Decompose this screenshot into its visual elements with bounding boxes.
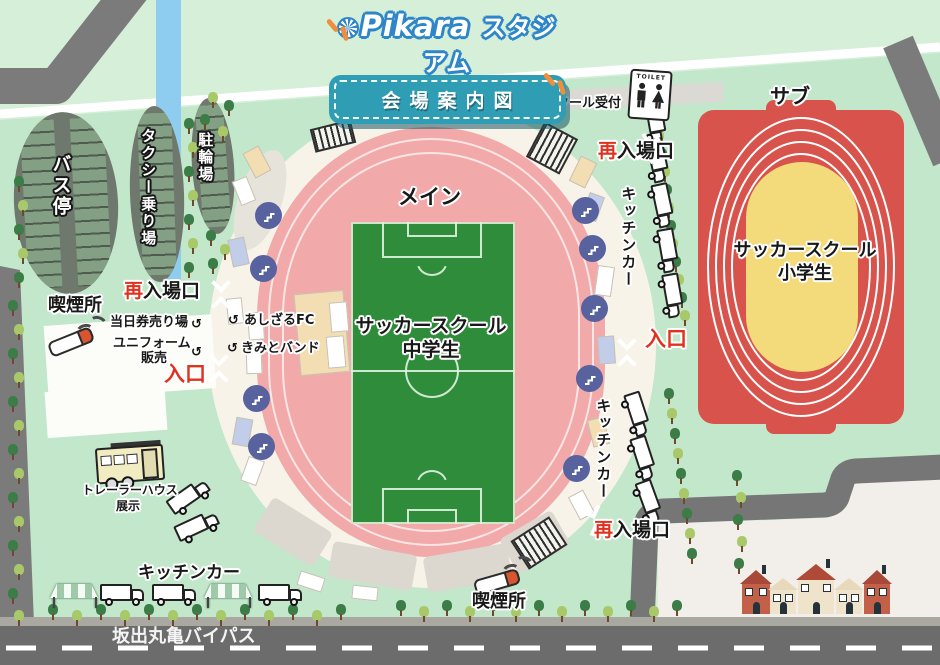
tree-icon [8, 492, 18, 508]
tree-icon [208, 92, 218, 108]
tree-icon [736, 492, 746, 508]
tree-icon [673, 448, 683, 464]
tree-icon [534, 600, 544, 616]
trailer-door [141, 448, 159, 479]
house-icon [796, 564, 836, 614]
venue-map: TOILET バス停 タクシー乗り場 駐輪場 喫煙所 喫煙所 再入場口 再入場口… [0, 0, 940, 665]
booth-ashizaru-label: あしざるFC [244, 314, 314, 328]
tree-icon [8, 300, 18, 316]
uniform-sales-label: ユニフォーム [113, 337, 191, 351]
tree-icon [188, 190, 198, 206]
stairs-badge-icon [572, 197, 599, 224]
male-icon [635, 82, 648, 109]
booth-kimito-label: きみとバンド [241, 342, 320, 356]
tree-icon [679, 488, 689, 504]
tree-icon [14, 564, 24, 580]
smoking-area-label: 喫煙所 [472, 592, 526, 611]
goal-box-bottom [407, 509, 457, 524]
female-icon [651, 83, 666, 110]
bus-stop-label: バス停 [50, 154, 71, 217]
tree-icon [14, 610, 24, 626]
tree-icon [206, 230, 216, 246]
reentry-gate-label: 再入場口 [594, 520, 670, 541]
main-field-label: サッカースクール [331, 316, 531, 337]
booth-arrow-icon: ↺ [227, 341, 238, 356]
tree-icon [732, 470, 742, 486]
tree-icon [224, 100, 234, 116]
tree-icon [14, 468, 24, 484]
tree-icon [18, 200, 28, 216]
tree-icon [580, 600, 590, 616]
map-title: Pikara スタジアム 会場案内図 [327, 8, 567, 119]
stairs-badge-icon [581, 295, 608, 322]
tree-icon [664, 388, 674, 404]
goal-box-top [407, 222, 457, 237]
tree-icon [216, 610, 226, 626]
bicycle-parking-label: 駐輪場 [197, 132, 213, 183]
booth-arrow-icon: ↺ [191, 317, 202, 332]
taxi-stand-label: タクシー乗り場 [140, 128, 156, 247]
tree-icon [396, 600, 406, 616]
tree-icon [14, 516, 24, 532]
tree-icon [72, 610, 82, 626]
food-truck-icon [152, 584, 198, 608]
trailer-house-label: トレーラーハウス [82, 484, 178, 497]
toilet-sign-text: TOILET [636, 73, 666, 82]
reentry-gate-label: 再入場口 [598, 141, 674, 162]
tree-icon [603, 606, 613, 622]
concourse-stall [351, 585, 378, 602]
tree-icon [672, 600, 682, 616]
booth-arrow-icon: ↺ [228, 313, 239, 328]
tree-icon [557, 606, 567, 622]
tree-icon [685, 528, 695, 544]
tree-icon [14, 176, 24, 192]
day-ticket-label: 当日券売り場 [110, 316, 188, 330]
main-field-label2: 中学生 [331, 340, 531, 361]
house-icon [768, 578, 798, 614]
sub-field-label: サッカースクール [705, 241, 905, 260]
stairs-badge-icon [579, 235, 606, 262]
tree-icon [188, 238, 198, 254]
tree-icon [312, 610, 322, 626]
gate-icon [214, 276, 228, 313]
tree-icon [200, 114, 210, 130]
tree-icon [18, 248, 28, 264]
tree-icon [649, 606, 659, 622]
food-truck-icon [258, 584, 304, 608]
entrance-label: 入口 [645, 328, 687, 351]
tree-icon [184, 118, 194, 134]
house-icon [862, 570, 892, 614]
tree-icon [14, 420, 24, 436]
tree-icon [120, 610, 130, 626]
food-truck-icon [100, 584, 146, 608]
tent-icon [50, 584, 98, 610]
stairs-badge-icon [250, 255, 277, 282]
houses-illustration [738, 550, 894, 614]
bypass-road-label: 坂出丸亀バイパス [112, 627, 256, 646]
tree-icon [676, 468, 686, 484]
west-building-annex [45, 384, 168, 438]
stairs-badge-icon [255, 202, 282, 229]
title-banner: 会場案内図 [334, 80, 561, 119]
tree-icon [667, 408, 677, 424]
tree-icon [14, 372, 24, 388]
entrance-label: 入口 [164, 363, 206, 386]
tree-icon [626, 600, 636, 616]
tree-icon [208, 258, 218, 274]
tree-icon [8, 396, 18, 412]
reentry-gate-label: 再入場口 [124, 281, 200, 302]
smoking-area-label: 喫煙所 [48, 296, 102, 315]
booth-arrow-icon: ↺ [191, 345, 202, 360]
stairs-badge-icon [248, 433, 275, 460]
stairs-badge-icon [576, 365, 603, 392]
tree-icon [184, 166, 194, 182]
stairs-badge-icon [563, 455, 590, 482]
tree-icon [218, 126, 228, 142]
sub-track-label: サブ [770, 86, 810, 108]
pikara-logo: Pikara スタジアム [327, 8, 567, 78]
tree-icon [682, 508, 692, 524]
main-track-label: メイン [398, 186, 461, 209]
tree-icon [442, 600, 452, 616]
tree-icon [687, 548, 697, 564]
stairs-badge-icon [243, 385, 270, 412]
tree-icon [8, 540, 18, 556]
tree-icon [336, 604, 346, 620]
tree-icon [14, 224, 24, 240]
kitchen-car-label: キッチンカー [595, 398, 611, 500]
tent-icon [204, 584, 252, 610]
tree-icon [220, 244, 230, 260]
uniform-sales-label2: 販売 [141, 352, 167, 366]
tree-icon [419, 606, 429, 622]
tree-icon [184, 214, 194, 230]
tree-icon [670, 428, 680, 444]
tree-icon [8, 444, 18, 460]
kitchen-car-label: キッチンカー [138, 564, 240, 582]
tree-icon [8, 348, 18, 364]
tree-icon [168, 610, 178, 626]
toilet-sign: TOILET [627, 69, 672, 122]
tree-icon [264, 610, 274, 626]
house-icon [834, 578, 864, 614]
tree-icon [8, 588, 18, 604]
gate-icon [212, 350, 226, 387]
tree-icon [733, 514, 743, 530]
tree-icon [14, 272, 24, 288]
tree-icon [14, 324, 24, 340]
sub-field-label2: 小学生 [705, 264, 905, 283]
kitchen-car-label: キッチンカー [620, 186, 636, 288]
trailer-house-label2: 展示 [116, 500, 140, 513]
gate-icon [620, 334, 634, 371]
tree-icon [184, 262, 194, 278]
soccer-field [351, 222, 515, 524]
concourse-stall [597, 335, 616, 364]
